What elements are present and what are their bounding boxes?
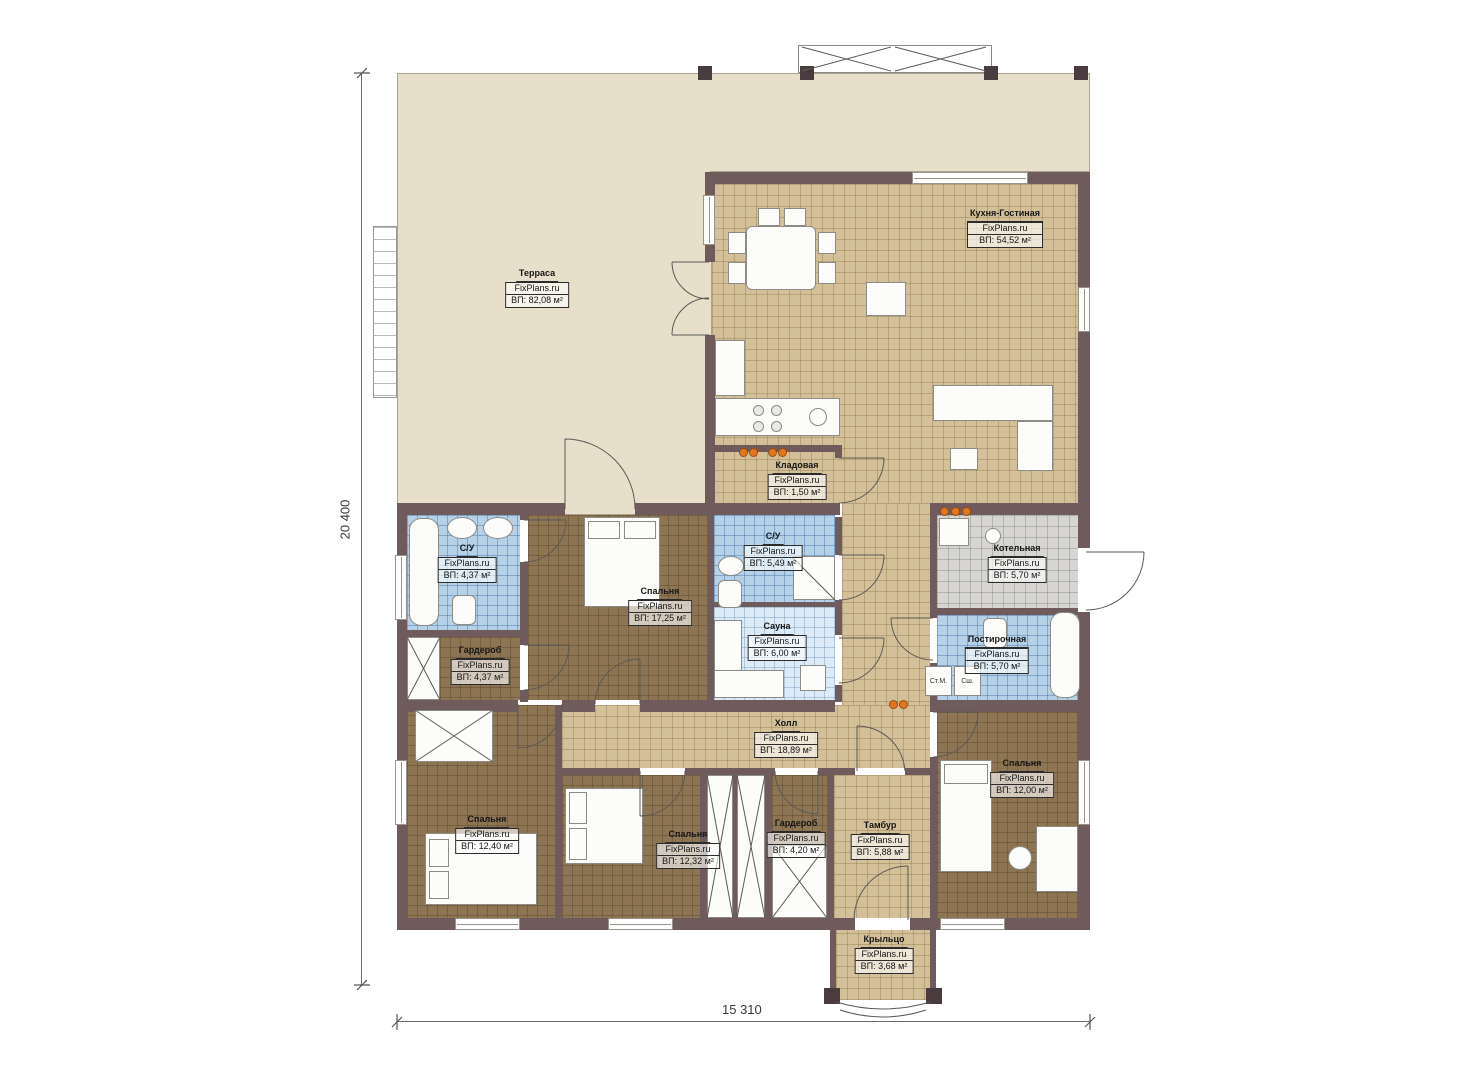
hall-floor [562,705,930,768]
room-info-box: FixPlans.ru ВП: 1,50 м² [768,474,827,500]
room-info-box: FixPlans.ru ВП: 5,88 м² [851,834,910,860]
room-info-box: FixPlans.ru ВП: 3,68 м² [855,948,914,974]
wall [705,245,715,262]
room-name: Кладовая [772,460,821,474]
radiator-dot [768,448,777,457]
wall [1078,332,1090,548]
wall [930,515,937,618]
room-label-storage: Кладовая FixPlans.ru ВП: 1,50 м² [768,460,827,500]
room-name: Гардероб [772,818,821,832]
room-area: ВП: 17,25 м² [629,612,691,625]
chair [818,262,836,284]
wall [397,825,407,918]
wall [520,515,528,520]
room-label-wardrobe2: Гардероб FixPlans.ru ВП: 4,20 м² [767,818,826,858]
stove-burner [753,405,764,416]
chair [728,262,746,284]
room-area: ВП: 4,37 м² [452,671,509,684]
room-area: ВП: 12,00 м² [991,784,1053,797]
washer-label: Ст.М. [925,678,952,685]
wall [827,775,834,918]
porch-column [824,988,840,1004]
sink [447,517,477,539]
room-area: ВП: 54,52 м² [968,234,1042,247]
wall [930,757,937,918]
bathtub [409,518,439,626]
room-label-sauna: Сауна FixPlans.ru ВП: 6,00 м² [748,621,807,661]
brand-label: FixPlans.ru [968,223,1042,235]
sink [483,517,513,539]
wall [520,918,608,930]
wall [707,515,714,705]
room-label-bedroom4: Спальня FixPlans.ru ВП: 12,00 м² [990,758,1054,798]
room-area: ВП: 4,37 м² [439,569,496,582]
room-name: Котельная [990,543,1043,557]
room-label-wardrobe1: Гардероб FixPlans.ru ВП: 4,37 м² [451,645,510,685]
brand-label: FixPlans.ru [768,833,825,845]
room-name: Спальня [666,829,711,843]
terrace-roof-strip [710,73,1090,172]
boiler [939,518,969,546]
room-info-box: FixPlans.ru ВП: 4,20 м² [767,832,826,858]
room-label-hall: Холл FixPlans.ru ВП: 18,89 м² [754,718,818,758]
radiator-dot [962,507,971,516]
room-area: ВП: 18,89 м² [755,744,817,757]
brand-label: FixPlans.ru [755,733,817,745]
desk-chair [1008,846,1032,870]
boiler-tank [985,528,1001,544]
room-area: ВП: 12,32 м² [657,855,719,868]
brand-label: FixPlans.ru [506,283,568,295]
window [455,918,520,930]
wall [397,515,407,555]
brand-label: FixPlans.ru [991,773,1053,785]
pergola [798,45,992,73]
radiator-dot [951,507,960,516]
pillow [944,764,988,784]
room-info-box: FixPlans.ru ВП: 18,89 м² [754,732,818,758]
porch-column [926,988,942,1004]
wall [640,700,835,712]
room-area: ВП: 1,50 м² [769,486,826,499]
coffee-table [950,448,978,470]
chair [818,232,836,254]
brand-label: FixPlans.ru [769,475,826,487]
wall [397,620,407,760]
wall [562,700,595,712]
room-info-box: FixPlans.ru ВП: 12,32 м² [656,843,720,869]
room-label-bathroom2: С/У FixPlans.ru ВП: 5,49 м² [744,531,803,571]
room-label-bedroom1: Спальня FixPlans.ru ВП: 17,25 м² [628,586,692,626]
radiator-dot [940,507,949,516]
kitchen-sink [809,408,827,426]
room-name: Терраса [516,268,558,282]
room-label-laundry: Постирочная FixPlans.ru ВП: 5,70 м² [965,634,1029,674]
room-name: Сауна [760,621,793,635]
corridor-floor [842,503,930,705]
room-info-box: FixPlans.ru ВП: 6,00 м² [748,635,807,661]
wall [835,685,842,702]
room-info-box: FixPlans.ru ВП: 82,08 м² [505,282,569,308]
desk [1036,826,1078,892]
room-area: ВП: 4,20 м² [768,844,825,857]
window [608,918,673,930]
room-info-box: FixPlans.ru ВП: 5,70 м² [965,648,1029,674]
wall [685,768,700,775]
wall [818,768,827,775]
window [1078,287,1090,332]
chair [784,208,806,226]
brand-label: FixPlans.ru [989,558,1046,570]
window [395,760,407,825]
room-name: Кухня-Гостиная [967,208,1043,222]
bathtub [1050,612,1080,698]
dimension-label-bottom: 15 310 [722,1002,762,1017]
room-name: Постирочная [965,634,1029,648]
stove-burner [771,405,782,416]
sauna-heater [800,665,826,691]
kitchen-island [866,282,906,316]
room-info-box: FixPlans.ru ВП: 5,49 м² [744,545,803,571]
radiator-dot [739,448,748,457]
brand-label: FixPlans.ru [749,636,806,648]
brand-label: FixPlans.ru [852,835,909,847]
brand-label: FixPlans.ru [966,649,1028,661]
room-name: Холл [772,718,801,732]
wall [555,705,562,918]
room-name: Спальня [638,586,683,600]
room-info-box: FixPlans.ru ВП: 12,00 м² [990,772,1054,798]
wall [827,768,855,775]
brand-label: FixPlans.ru [629,601,691,613]
wall [705,184,715,195]
terrace-steps [373,226,397,398]
room-info-box: FixPlans.ru ВП: 4,37 м² [438,557,497,583]
wall [673,918,855,930]
closet-small [407,637,440,700]
room-area: ВП: 6,00 м² [749,647,806,660]
chair [758,208,780,226]
toilet [718,580,742,608]
room-label-boiler: Котельная FixPlans.ru ВП: 5,70 м² [988,543,1047,583]
dimension-line-left [361,73,362,985]
room-name: Спальня [1000,758,1045,772]
radiator-dot [889,700,898,709]
room-info-box: FixPlans.ru ВП: 17,25 м² [628,600,692,626]
radiator-dot [778,448,787,457]
toilet [452,595,476,625]
room-name: Спальня [465,814,510,828]
pillow [588,521,620,539]
dimension-line-bottom [397,1021,1090,1022]
stove-burner [771,421,782,432]
room-name: Крыльцо [861,934,908,948]
room-name: Гардероб [456,645,505,659]
terrace-column [1074,66,1088,80]
brand-label: FixPlans.ru [452,660,509,672]
wall [930,700,1080,712]
room-area: ВП: 82,08 м² [506,294,568,307]
window [912,172,1028,184]
terrace-column [698,66,712,80]
door-opening [855,918,910,930]
window [1078,760,1090,825]
sink [718,556,744,576]
wall [397,503,565,515]
pillow [624,521,656,539]
wall [405,630,520,637]
wall [905,768,930,775]
radiator-dot [749,448,758,457]
wall [705,172,912,184]
wall [520,562,528,645]
wall [1078,825,1090,930]
room-label-bedroom2: Спальня FixPlans.ru ВП: 12,40 м² [455,814,519,854]
terrace-column [984,66,998,80]
room-label-bathroom1: С/У FixPlans.ru ВП: 4,37 м² [438,543,497,583]
brand-label: FixPlans.ru [856,949,913,961]
terrace-column [800,66,814,80]
pillow [569,828,587,860]
dryer-label: Сш. [954,678,981,685]
sauna-bench [714,670,784,698]
wall [560,768,640,775]
dimension-label-left: 20 400 [337,500,352,540]
pillow [569,792,587,824]
room-area: ВП: 5,70 м² [966,660,1028,673]
wall [397,918,455,930]
room-area: ВП: 5,70 м² [989,569,1046,582]
wall [712,445,842,452]
pillow [429,871,449,899]
window [940,918,1005,930]
sofa [1017,421,1053,471]
closet-b [737,775,765,918]
fridge [715,340,745,396]
room-area: ВП: 3,68 м² [856,960,913,973]
room-area: ВП: 12,40 м² [456,840,518,853]
room-name: Тамбур [861,820,900,834]
wall [835,517,842,555]
wall [520,690,528,702]
sofa [933,385,1053,421]
room-info-box: FixPlans.ru ВП: 54,52 м² [967,222,1043,248]
wall [835,600,842,635]
pillow [429,839,449,867]
door-opening [1078,548,1090,612]
wall [835,445,842,458]
brand-label: FixPlans.ru [456,829,518,841]
closet-bedroom2 [415,710,493,762]
wall [1078,172,1090,287]
room-area: ВП: 5,49 м² [745,557,802,570]
wall [765,768,775,775]
window [395,555,407,620]
wall [635,503,840,515]
room-info-box: FixPlans.ru ВП: 12,40 м² [455,828,519,854]
wall [705,335,715,503]
window [703,195,715,245]
brand-label: FixPlans.ru [439,558,496,570]
stove-burner [753,421,764,432]
room-label-terrace: Терраса FixPlans.ru ВП: 82,08 м² [505,268,569,308]
room-label-vestibule: Тамбур FixPlans.ru ВП: 5,88 м² [851,820,910,860]
room-area: ВП: 5,88 м² [852,846,909,859]
floor-plan: Ст.М. Сш. [0,0,1474,1080]
room-info-box: FixPlans.ru ВП: 4,37 м² [451,659,510,685]
wall [700,768,765,775]
room-name: С/У [763,531,784,545]
radiator-dot [899,700,908,709]
room-label-bedroom3: Спальня FixPlans.ru ВП: 12,32 м² [656,829,720,869]
room-label-kitchen-living: Кухня-Гостиная FixPlans.ru ВП: 54,52 м² [967,208,1043,248]
room-name: С/У [457,543,478,557]
brand-label: FixPlans.ru [745,546,802,558]
dining-table [746,226,816,290]
brand-label: FixPlans.ru [657,844,719,856]
room-label-porch: Крыльцо FixPlans.ru ВП: 3,68 м² [855,934,914,974]
room-info-box: FixPlans.ru ВП: 5,70 м² [988,557,1047,583]
chair [728,232,746,254]
